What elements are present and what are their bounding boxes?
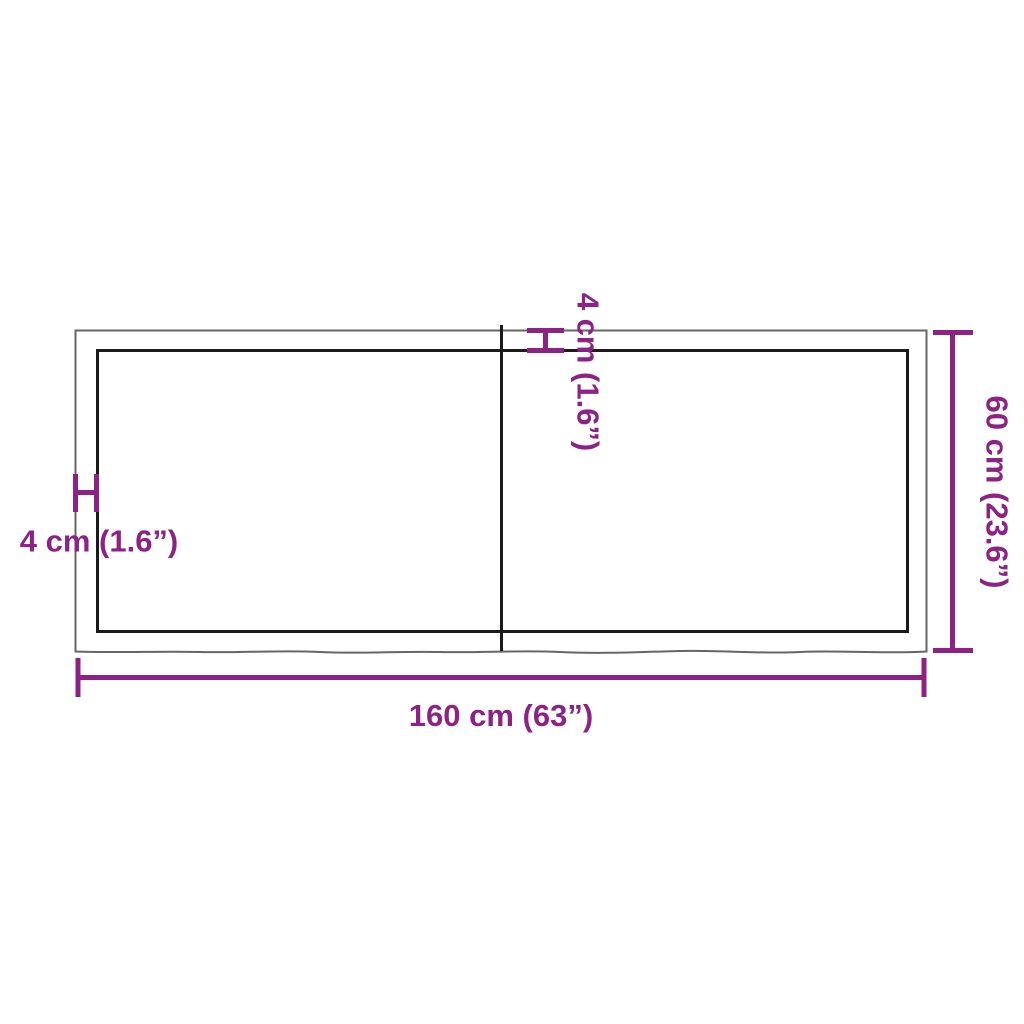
thickness-bracket-left (73, 474, 99, 512)
height-dimension-label: 60 cm (23.6”) (982, 396, 1013, 589)
dimension-diagram: 160 cm (63”) 60 cm (23.6”) 4 cm (1.6”) 4… (0, 0, 1024, 1024)
diagram-linework (0, 0, 1024, 1024)
thickness-bracket-top (527, 328, 564, 353)
width-dimension-line (78, 658, 924, 697)
thickness-label-top: 4 cm (1.6”) (573, 293, 604, 452)
height-dimension-line (933, 333, 973, 651)
thickness-label-left: 4 cm (1.6”) (20, 526, 179, 557)
width-dimension-label: 160 cm (63”) (409, 700, 593, 731)
